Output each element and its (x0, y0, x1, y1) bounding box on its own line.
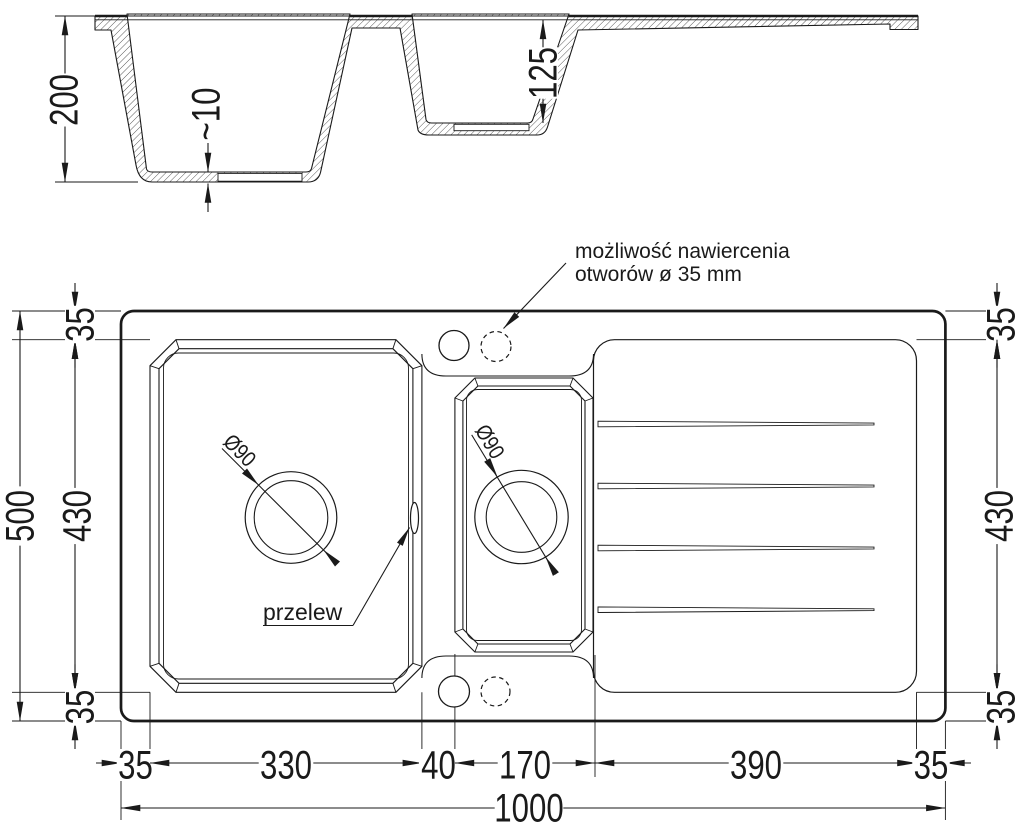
faucet-hole-top (439, 331, 469, 361)
small-bowl-drain: Ø90 (470, 421, 568, 576)
drainer-board (594, 340, 917, 693)
overflow: przelew (263, 503, 419, 626)
dim-offset-top-right: 35 (979, 283, 1024, 368)
dim-offset-top-right-label: 35 (979, 307, 1024, 342)
dim-inner-height-right-label: 430 (977, 490, 1022, 542)
overflow-label: przelew (263, 599, 343, 625)
dim-offset-bottom-right-label: 35 (979, 690, 1024, 725)
small-bowl-corner-facets (455, 378, 593, 652)
main-bowl-corner-facets (150, 340, 422, 693)
section-view: 200 ~10 125 (42, 14, 918, 212)
dim-inner-height-left: 430 (55, 340, 100, 693)
main-drain-diameter-label: Ø90 (218, 430, 260, 472)
deck-step-bottom (422, 656, 594, 678)
dim-row-segments: 35 330 40 170 390 (96, 743, 971, 788)
dim-height-total-label: 500 (0, 490, 42, 542)
drilling-note-line1: możliwość nawiercenia (575, 240, 790, 263)
dim-width-1000: 1000 (121, 786, 945, 827)
overflow-slot (411, 503, 419, 534)
dim-depth-small-label: 125 (521, 47, 566, 99)
drainer-grooves (598, 421, 874, 612)
dim-inner-height-left-label: 430 (55, 490, 100, 542)
main-bowl-drain-recess (218, 173, 302, 181)
dim-seg-170-label: 170 (499, 743, 551, 788)
dim-height-500: 500 (0, 311, 42, 721)
small-bowl (455, 378, 593, 652)
drilling-note-line2: otworów ø 35 mm (575, 263, 742, 286)
dim-floor-thickness-label: ~10 (184, 88, 229, 141)
small-bowl-drain-recess (454, 124, 529, 130)
dim-seg-390-label: 390 (730, 743, 782, 788)
dim-inner-height-right: 430 (977, 340, 1022, 693)
drilling-note: możliwość nawiercenia otworów ø 35 mm (504, 240, 791, 329)
dim-depth-total-label: 200 (42, 74, 87, 126)
dim-depth-125: 125 (521, 20, 566, 123)
dim-offset-top-left-label: 35 (58, 307, 103, 342)
plan-view: Ø90 Ø90 przelew możliwość nawiercenia ot… (0, 240, 1023, 827)
main-bowl-drain: Ø90 (218, 430, 340, 566)
main-bowl (150, 340, 422, 693)
dim-offset-bottom-left: 35 (58, 664, 103, 749)
extension-lines-horizontal (12, 311, 1012, 721)
dim-offset-bottom-left-label: 35 (58, 690, 103, 725)
small-drain-diameter-label: Ø90 (470, 421, 509, 463)
faucet-hole-bottom (439, 676, 470, 707)
optional-hole-bottom (481, 677, 510, 706)
optional-hole-top (481, 332, 511, 362)
sink-technical-drawing: 200 ~10 125 (0, 0, 1024, 827)
dim-width-total-label: 1000 (494, 786, 563, 827)
dim-seg-40-label: 40 (421, 743, 456, 788)
dim-seg-35-right-label: 35 (914, 743, 949, 788)
dim-seg-35-left-label: 35 (118, 743, 153, 788)
dim-offset-bottom-right: 35 (979, 664, 1024, 749)
dim-seg-330-label: 330 (260, 743, 312, 788)
dim-floor-thickness: ~10 (184, 88, 229, 212)
dim-offset-top-left: 35 (58, 283, 103, 368)
